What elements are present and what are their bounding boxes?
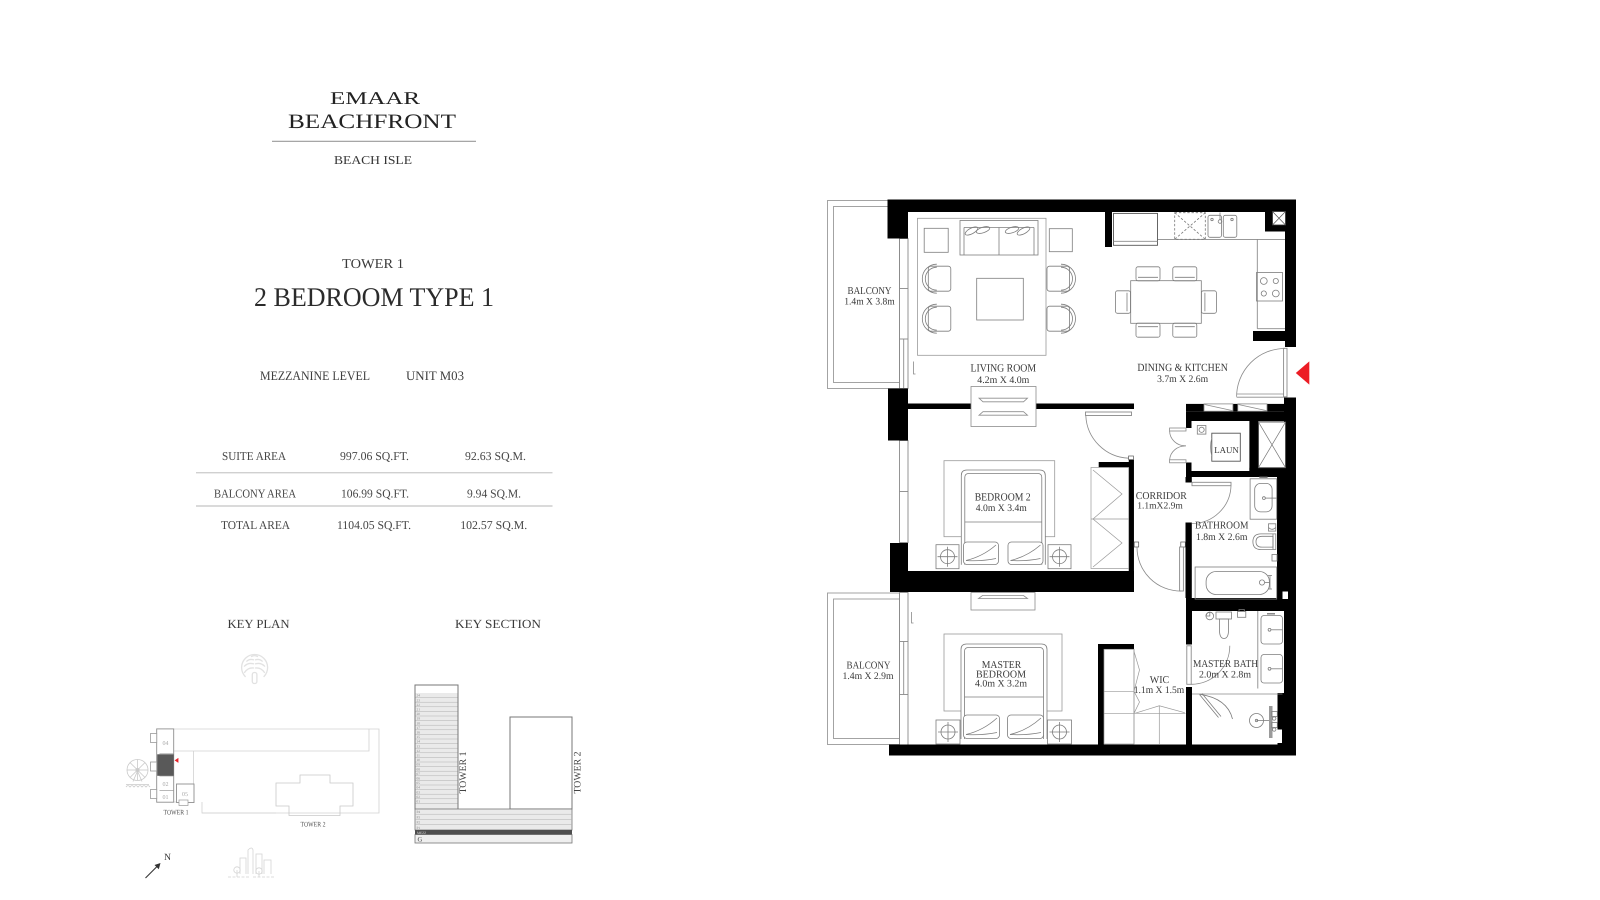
svg-text:13: 13 (417, 744, 421, 748)
svg-text:TOWER 2: TOWER 2 (301, 821, 326, 829)
svg-text:1104.05 SQ.FT.: 1104.05 SQ.FT. (337, 518, 411, 532)
svg-text:19: 19 (417, 717, 421, 721)
svg-text:P2: P2 (417, 821, 421, 825)
svg-text:4.0m X 3.4m: 4.0m X 3.4m (976, 503, 1027, 514)
svg-text:N: N (164, 853, 171, 863)
svg-text:TOTAL AREA: TOTAL AREA (221, 518, 290, 532)
svg-text:1.1m X 1.5m: 1.1m X 1.5m (1134, 685, 1185, 696)
svg-text:106.99 SQ.FT.: 106.99 SQ.FT. (341, 487, 409, 501)
svg-text:2 BEDROOM TYPE 1: 2 BEDROOM TYPE 1 (254, 282, 494, 312)
svg-text:BATHROOM: BATHROOM (1195, 521, 1249, 532)
svg-text:1.4m X 3.8m: 1.4m X 3.8m (844, 296, 895, 307)
svg-text:1.1mX2.9m: 1.1mX2.9m (1137, 502, 1183, 512)
svg-text:05: 05 (182, 792, 188, 798)
svg-text:23: 23 (417, 698, 421, 702)
svg-text:BEACH ISLE: BEACH ISLE (334, 153, 412, 167)
svg-text:TOWER 1: TOWER 1 (458, 752, 469, 794)
svg-text:02: 02 (417, 795, 421, 799)
svg-text:G: G (418, 837, 423, 844)
svg-text:02: 02 (163, 782, 169, 788)
svg-text:TOWER 2: TOWER 2 (573, 752, 584, 794)
svg-text:TOWER 1: TOWER 1 (164, 809, 189, 817)
svg-text:1.8m X 2.6m: 1.8m X 2.6m (1196, 532, 1248, 543)
svg-text:997.06 SQ.FT.: 997.06 SQ.FT. (340, 449, 409, 463)
svg-text:9.94 SQ.M.: 9.94 SQ.M. (467, 487, 521, 501)
svg-text:TOWER 1: TOWER 1 (342, 256, 404, 271)
svg-text:12: 12 (417, 749, 421, 753)
svg-text:07: 07 (417, 772, 421, 776)
svg-text:92.63 SQ.M.: 92.63 SQ.M. (465, 449, 526, 463)
svg-text:15: 15 (417, 735, 421, 739)
svg-text:2.0m X 2.8m: 2.0m X 2.8m (1199, 669, 1251, 680)
svg-text:P3: P3 (417, 815, 421, 819)
svg-text:4.2m X 4.0m: 4.2m X 4.0m (977, 375, 1029, 386)
svg-text:CORRIDOR: CORRIDOR (1136, 491, 1187, 502)
svg-text:08: 08 (417, 767, 421, 771)
svg-text:UNIT M03: UNIT M03 (406, 368, 464, 383)
svg-text:102.57 SQ.M.: 102.57 SQ.M. (460, 518, 527, 532)
svg-text:BALCONY: BALCONY (847, 661, 891, 672)
svg-text:LAUN: LAUN (1214, 445, 1239, 455)
svg-text:1.4m X 2.9m: 1.4m X 2.9m (843, 671, 894, 682)
svg-text:16: 16 (417, 731, 421, 735)
svg-text:3.7m X 2.6m: 3.7m X 2.6m (1157, 374, 1208, 385)
svg-text:KEY PLAN: KEY PLAN (228, 617, 290, 631)
svg-text:04: 04 (163, 741, 169, 747)
svg-text:22: 22 (417, 703, 421, 707)
svg-text:24: 24 (417, 694, 421, 698)
svg-text:MEZZANINE LEVEL: MEZZANINE LEVEL (260, 368, 370, 383)
svg-text:06: 06 (417, 777, 421, 781)
svg-text:17: 17 (417, 726, 421, 730)
svg-text:09: 09 (417, 763, 421, 767)
svg-text:01: 01 (417, 800, 421, 804)
svg-text:20: 20 (417, 712, 421, 716)
svg-text:SUITE AREA: SUITE AREA (222, 449, 286, 463)
svg-text:03: 03 (417, 790, 421, 794)
svg-text:05: 05 (417, 781, 421, 785)
svg-text:14: 14 (417, 740, 421, 744)
svg-text:01: 01 (163, 795, 169, 801)
svg-text:BEACHFRONT: BEACHFRONT (288, 111, 457, 133)
svg-text:4.0m X 3.2m: 4.0m X 3.2m (975, 679, 1027, 690)
svg-text:MASTER BATH: MASTER BATH (1193, 659, 1258, 670)
svg-text:LIVING ROOM: LIVING ROOM (971, 363, 1037, 375)
svg-text:DINING & KITCHEN: DINING & KITCHEN (1137, 362, 1228, 374)
svg-text:EMAAR: EMAAR (330, 88, 420, 108)
svg-text:10: 10 (417, 758, 421, 762)
svg-text:18: 18 (417, 721, 421, 725)
svg-text:21: 21 (417, 708, 421, 712)
svg-text:11: 11 (417, 754, 421, 758)
svg-text:KEY SECTION: KEY SECTION (455, 617, 541, 631)
svg-text:04: 04 (417, 786, 421, 790)
svg-text:BALCONY AREA: BALCONY AREA (214, 487, 296, 501)
svg-text:BEDROOM 2: BEDROOM 2 (975, 491, 1031, 503)
svg-text:P4: P4 (417, 810, 421, 814)
svg-text:P1: P1 (417, 826, 421, 830)
